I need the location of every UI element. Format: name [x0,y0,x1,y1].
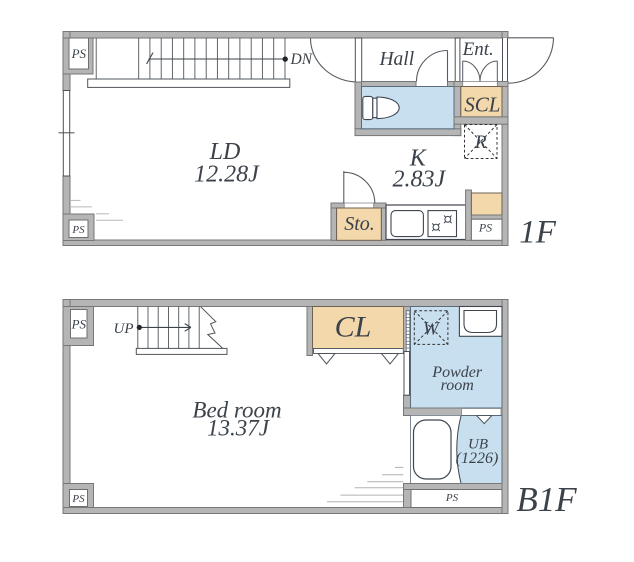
svg-text:PS: PS [71,224,85,236]
svg-text:R: R [474,132,487,153]
svg-text:PS: PS [445,492,459,504]
svg-text:PS: PS [71,317,87,332]
svg-text:13.37J: 13.37J [207,416,271,441]
svg-text:PS: PS [71,493,85,505]
svg-text:W: W [423,319,441,340]
svg-text:B1F: B1F [516,480,577,519]
svg-text:room: room [441,377,474,394]
svg-text:2.83J: 2.83J [392,167,446,193]
svg-text:PS: PS [71,46,87,61]
svg-text:(1226): (1226) [456,450,499,467]
svg-text:12.28J: 12.28J [194,162,260,188]
svg-text:1F: 1F [519,215,557,251]
svg-text:Ent.: Ent. [462,39,494,60]
svg-text:CL: CL [335,311,372,344]
svg-text:SCL: SCL [464,93,500,117]
svg-text:Hall: Hall [378,49,414,70]
svg-text:UP: UP [114,321,134,337]
svg-text:DN: DN [290,51,314,68]
svg-text:Sto.: Sto. [344,213,375,235]
svg-text:PS: PS [478,221,492,235]
